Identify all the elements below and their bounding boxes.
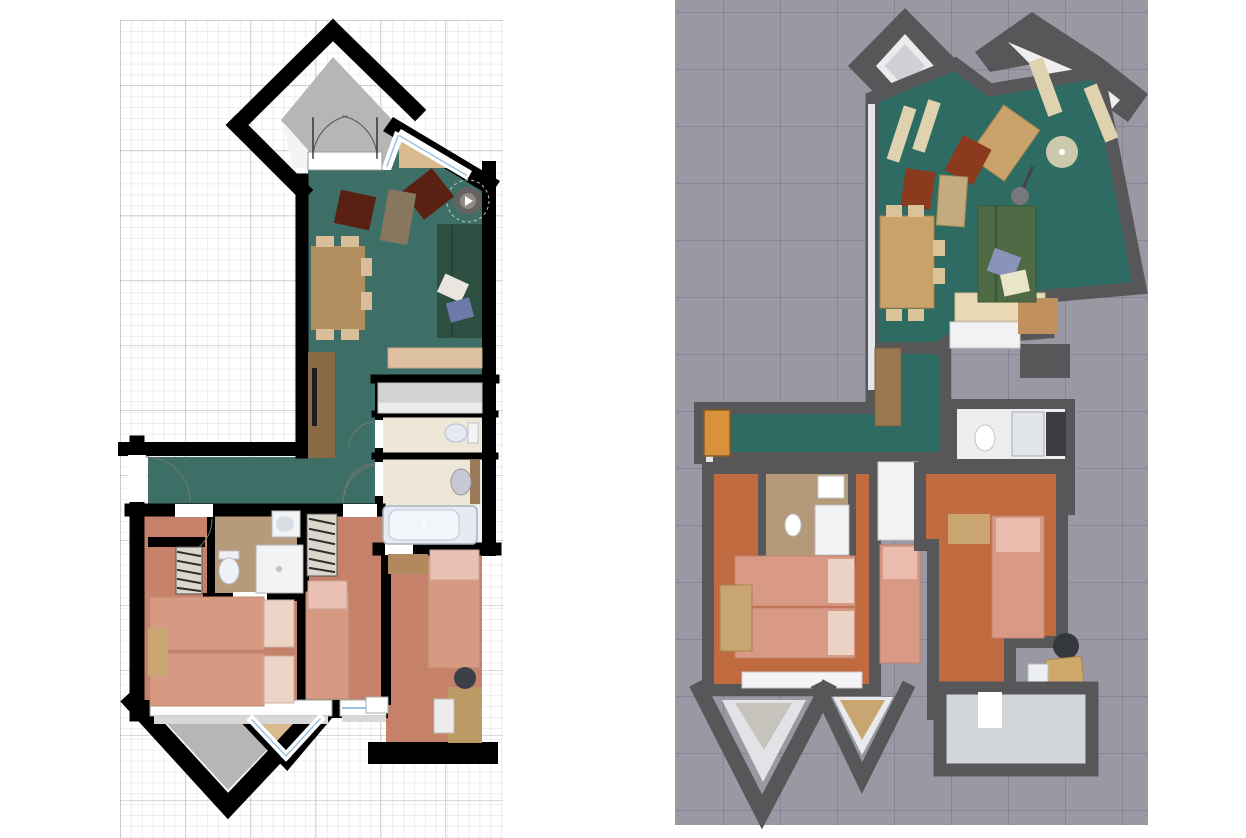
wc-toilet-tank (468, 423, 478, 443)
3d-living-left-innerface (868, 104, 875, 390)
3d-wc-dark-panel (1046, 412, 1066, 456)
3d-entrance-door[interactable] (704, 410, 730, 456)
3d-right-bed-pillow (996, 518, 1040, 552)
3d-ensuite-toilet[interactable] (785, 514, 801, 536)
3d-middle-bed-pillow (883, 547, 917, 579)
3d-kitchen-counter (1018, 298, 1058, 334)
3d-ceiling-fan-hub (1059, 149, 1065, 155)
3d-ensuite-shower[interactable] (815, 505, 849, 555)
3d-armchair-2[interactable] (901, 168, 936, 210)
twin-bed-2-pillow (264, 656, 294, 703)
3d-left-wardrobe[interactable] (720, 585, 752, 651)
floorplan-drawing-layer[interactable] (0, 0, 1246, 838)
middle-bed-pillow (308, 581, 347, 609)
bath-door-gap[interactable] (375, 462, 383, 496)
desk-chair-white[interactable] (434, 699, 454, 733)
entrance-door-gap[interactable] (128, 455, 146, 502)
leftbed-door-sill (154, 716, 328, 724)
ensuite-shower-drain (276, 566, 282, 572)
3d-bottomright-window (978, 692, 1002, 728)
3d-dining-chair-4[interactable] (908, 309, 924, 321)
dining-chair-1[interactable] (316, 236, 334, 247)
rightbed-window (366, 697, 388, 713)
ensuite-sink-basin (276, 516, 294, 532)
3d-twin-bed-2-pillow (828, 611, 854, 655)
dining-chair-2[interactable] (341, 236, 359, 247)
3d-dining-chair-3[interactable] (886, 309, 902, 321)
3d-washer[interactable] (1012, 412, 1044, 456)
alcove-stub-wall (148, 537, 205, 547)
3d-dining-chair-2[interactable] (908, 205, 924, 217)
3d-kitchen-wall-band (1020, 344, 1070, 378)
3d-coffee-table[interactable] (936, 175, 967, 227)
3d-dining-chair-1[interactable] (886, 205, 902, 217)
kitchen-cabinet-fronts (378, 402, 482, 413)
balcony-french-door[interactable] (308, 152, 382, 170)
bathtub-drain (422, 523, 426, 527)
floorplan-app-canvas (0, 0, 1246, 838)
dining-chair-5[interactable] (361, 258, 372, 276)
wc-door-gap[interactable] (375, 420, 383, 448)
3d-corridor-cabinet[interactable] (875, 348, 901, 426)
right-bed-pillow (430, 550, 479, 580)
3d-dining-table[interactable] (880, 216, 934, 308)
3d-dining-chair-6[interactable] (933, 268, 945, 284)
midbed-window-sill (342, 716, 386, 722)
3d-bottomright-room (940, 688, 1092, 770)
3d-left-french-door[interactable] (742, 672, 862, 688)
3d-wc-toilet[interactable] (975, 425, 995, 451)
dining-chair-3[interactable] (316, 329, 334, 340)
3d-kitchen-units[interactable] (950, 322, 1020, 348)
tv-screen (312, 368, 317, 426)
office-chair[interactable] (454, 667, 476, 689)
3d-ensuite-sink[interactable] (818, 476, 844, 498)
dining-table[interactable] (311, 246, 365, 330)
bath-sink-basin[interactable] (451, 469, 471, 495)
kitchen-counter[interactable] (378, 383, 482, 403)
3d-dining-chair-5[interactable] (933, 240, 945, 256)
bedroom-bench[interactable] (148, 628, 168, 676)
sideboard[interactable] (388, 348, 482, 368)
3d-small-table[interactable] (948, 514, 990, 544)
ensuite-toilet-bowl[interactable] (219, 558, 239, 584)
midbed-door-gap[interactable] (343, 504, 377, 517)
3d-twin-bed-1-pillow (828, 559, 854, 603)
3d-floor-lamp-base[interactable] (1011, 187, 1029, 205)
3d-hall-floor[interactable] (700, 348, 945, 458)
3d-white-column (878, 462, 918, 540)
right-dresser[interactable] (388, 554, 428, 574)
dining-chair-4[interactable] (341, 329, 359, 340)
wc-toilet-bowl[interactable] (445, 424, 467, 442)
dining-chair-6[interactable] (361, 292, 372, 310)
leftbed-door-gap[interactable] (175, 504, 213, 517)
3d-office-chair[interactable] (1053, 633, 1079, 659)
rightbed-bottom-wall (368, 742, 498, 764)
twin-bed-1-pillow (264, 600, 294, 647)
